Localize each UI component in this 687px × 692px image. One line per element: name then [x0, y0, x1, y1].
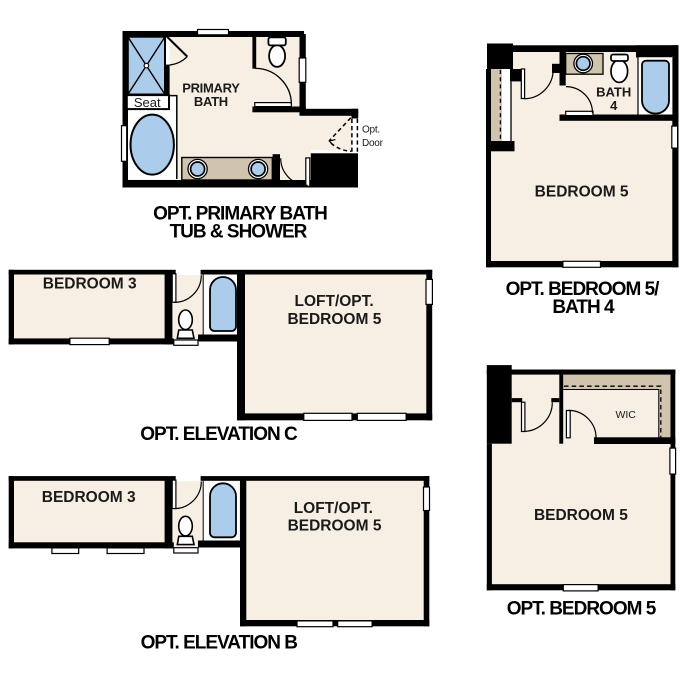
svg-text:OPT. BEDROOM 5: OPT. BEDROOM 5 — [507, 599, 657, 620]
svg-text:BEDROOM 3: BEDROOM 3 — [43, 276, 137, 293]
svg-text:4: 4 — [610, 98, 618, 113]
svg-text:BEDROOM 3: BEDROOM 3 — [42, 489, 136, 506]
svg-text:BATH: BATH — [194, 94, 228, 109]
svg-text:BEDROOM 5: BEDROOM 5 — [534, 507, 628, 524]
svg-text:LOFT/OPT.: LOFT/OPT. — [294, 293, 373, 310]
svg-text:BATH 4: BATH 4 — [552, 297, 615, 318]
svg-text:WIC: WIC — [615, 409, 636, 421]
svg-text:OPT. ELEVATION B: OPT. ELEVATION B — [141, 632, 298, 653]
svg-text:BEDROOM 5: BEDROOM 5 — [288, 517, 382, 534]
svg-text:Seat: Seat — [134, 95, 161, 110]
svg-text:Opt.: Opt. — [362, 124, 380, 135]
svg-text:BEDROOM 5: BEDROOM 5 — [287, 311, 381, 328]
svg-text:LOFT/OPT.: LOFT/OPT. — [294, 500, 373, 517]
svg-text:Door: Door — [362, 138, 384, 149]
svg-text:OPT. ELEVATION C: OPT. ELEVATION C — [140, 424, 298, 445]
svg-text:BEDROOM 5: BEDROOM 5 — [535, 183, 629, 200]
svg-text:TUB & SHOWER: TUB & SHOWER — [170, 222, 308, 243]
